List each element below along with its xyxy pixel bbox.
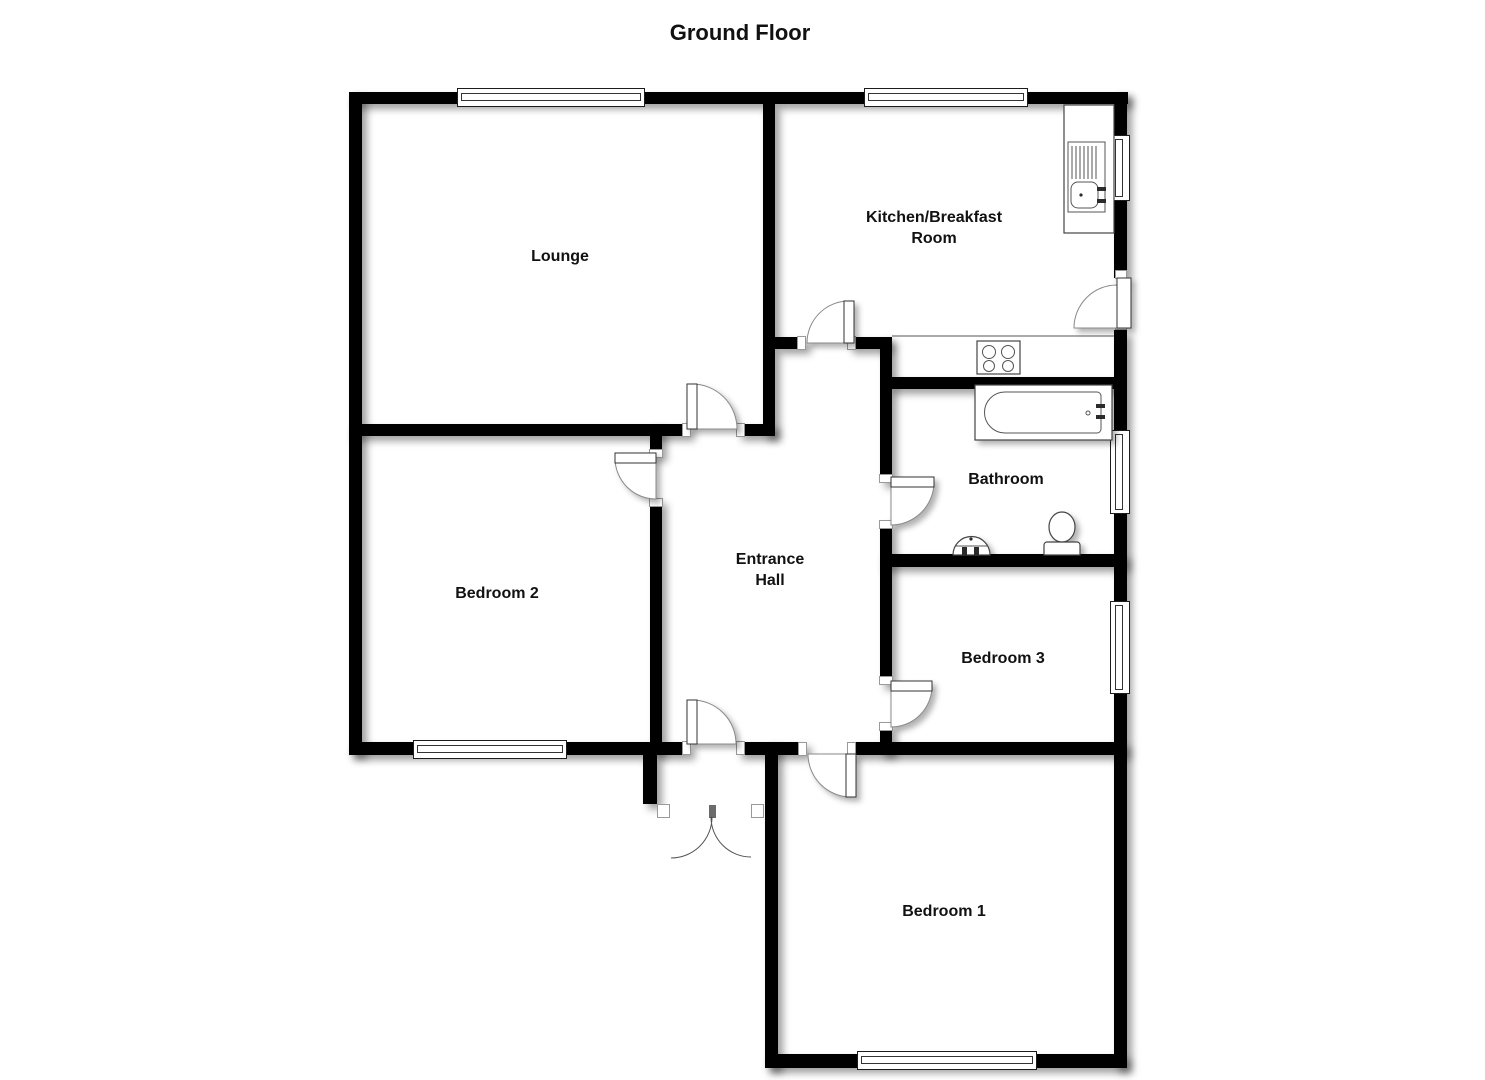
hob-ring-icon — [1003, 361, 1014, 372]
bedroom3-door — [891, 681, 932, 727]
bath-tub — [975, 385, 1112, 440]
window-pane — [417, 745, 563, 753]
room-label-kitchen: Kitchen/Breakfast Room — [866, 207, 1002, 249]
room-label-bedroom3: Bedroom 3 — [961, 648, 1045, 669]
jamb-lounge-door-right — [736, 423, 745, 437]
hall-inner-door — [687, 700, 736, 744]
wall-bathroom-west-a — [880, 337, 892, 483]
wall-bathroom-top — [888, 377, 1114, 389]
front-door-meeting-stile — [709, 805, 716, 818]
window-pane — [1115, 605, 1123, 690]
jamb-bedroom1-door-left — [798, 742, 807, 756]
front-double-door — [671, 805, 751, 858]
room-label-bathroom: Bathroom — [968, 469, 1044, 490]
wall-hall-bottom-c — [848, 742, 1126, 755]
jamb-back-door-bottom — [1115, 321, 1127, 330]
jamb-bedroom3-door-top — [879, 676, 893, 685]
bath-drain-dot — [1086, 411, 1090, 415]
jamb-bathroom-door-top — [879, 474, 893, 483]
kitchen-sink-unit — [1064, 105, 1114, 233]
basin-drain-dot — [969, 537, 972, 540]
kitchen-hob — [977, 341, 1020, 374]
window-pane — [1115, 434, 1123, 510]
jamb-bathroom-door-bottom — [879, 520, 893, 529]
room-label-hall-line1: Entrance — [736, 549, 804, 570]
jamb-back-door-top — [1115, 270, 1127, 279]
jamb-bedroom1-door-right — [847, 742, 856, 756]
wall-porch-west — [643, 755, 657, 804]
hob-ring-icon — [983, 346, 996, 359]
room-label-hall-line2: Hall — [736, 570, 804, 591]
wall-bathroom-bottom — [880, 554, 1126, 567]
room-label-entrance-hall: Entrance Hall — [736, 549, 804, 591]
window-bedroom3-right — [1110, 601, 1130, 694]
window-pane — [861, 1056, 1033, 1064]
window-pane — [1115, 139, 1123, 197]
room-label-lounge: Lounge — [531, 246, 589, 267]
toilet-pan — [1049, 512, 1075, 542]
jamb-hall-door-right — [736, 741, 745, 755]
window-bedroom2-bottom — [413, 740, 567, 759]
bedroom2-door — [615, 453, 656, 499]
sink-drainer-lines — [1072, 146, 1096, 179]
wall-bedroom2-east-b — [650, 499, 662, 754]
window-bedroom1-bottom — [857, 1051, 1037, 1070]
lounge-door — [687, 384, 737, 429]
sink-tap-icon — [1097, 187, 1106, 191]
hob-ring-icon — [1002, 346, 1015, 359]
jamb-kitchen-door-left — [797, 336, 806, 350]
bath-tap-icon — [1096, 404, 1105, 408]
window-pane — [461, 93, 641, 101]
wash-basin — [953, 537, 990, 556]
jamb-front-door-right — [751, 804, 764, 818]
wall-outer-left — [349, 92, 362, 754]
room-label-kitchen-line1: Kitchen/Breakfast — [866, 207, 1002, 228]
jamb-kitchen-door-right — [847, 336, 856, 350]
jamb-front-door-left — [657, 804, 670, 818]
wall-bathroom-west-b — [880, 521, 892, 685]
window-lounge-top — [457, 88, 645, 107]
front-door-swing-left — [671, 817, 712, 858]
floor-plan: Ground Floor Lounge Kitchen/Breakfast Ro… — [0, 0, 1485, 1080]
sink-drain-dot — [1079, 193, 1082, 196]
sink-tap-icon — [1097, 199, 1106, 203]
bathroom-door — [891, 477, 934, 525]
jamb-bedroom2-door-bottom — [649, 498, 663, 507]
room-label-kitchen-line2: Room — [866, 228, 1002, 249]
toilet — [1044, 512, 1080, 555]
plan-title: Ground Floor — [670, 20, 811, 46]
room-label-bedroom2: Bedroom 2 — [455, 583, 539, 604]
window-kitchen-right — [1110, 135, 1130, 201]
jamb-hall-door-left — [682, 741, 691, 755]
hob-ring-icon — [984, 361, 995, 372]
jamb-bedroom3-door-bottom — [879, 722, 893, 731]
sink-bowl — [1071, 182, 1098, 208]
wall-lounge-bedroom2-a — [349, 424, 690, 436]
window-bathroom-right — [1110, 430, 1130, 514]
window-kitchen-top — [864, 88, 1028, 107]
window-pane — [868, 93, 1024, 101]
bath-tap-icon — [1096, 415, 1105, 419]
front-door-swing-right — [711, 817, 751, 857]
room-label-bedroom1: Bedroom 1 — [902, 901, 986, 922]
bedroom1-door — [808, 754, 856, 797]
jamb-bedroom2-door-top — [649, 449, 663, 458]
jamb-lounge-door-left — [682, 423, 691, 437]
wall-lounge-hall-vertical — [763, 104, 775, 436]
wall-bedroom1-west — [765, 742, 778, 1068]
